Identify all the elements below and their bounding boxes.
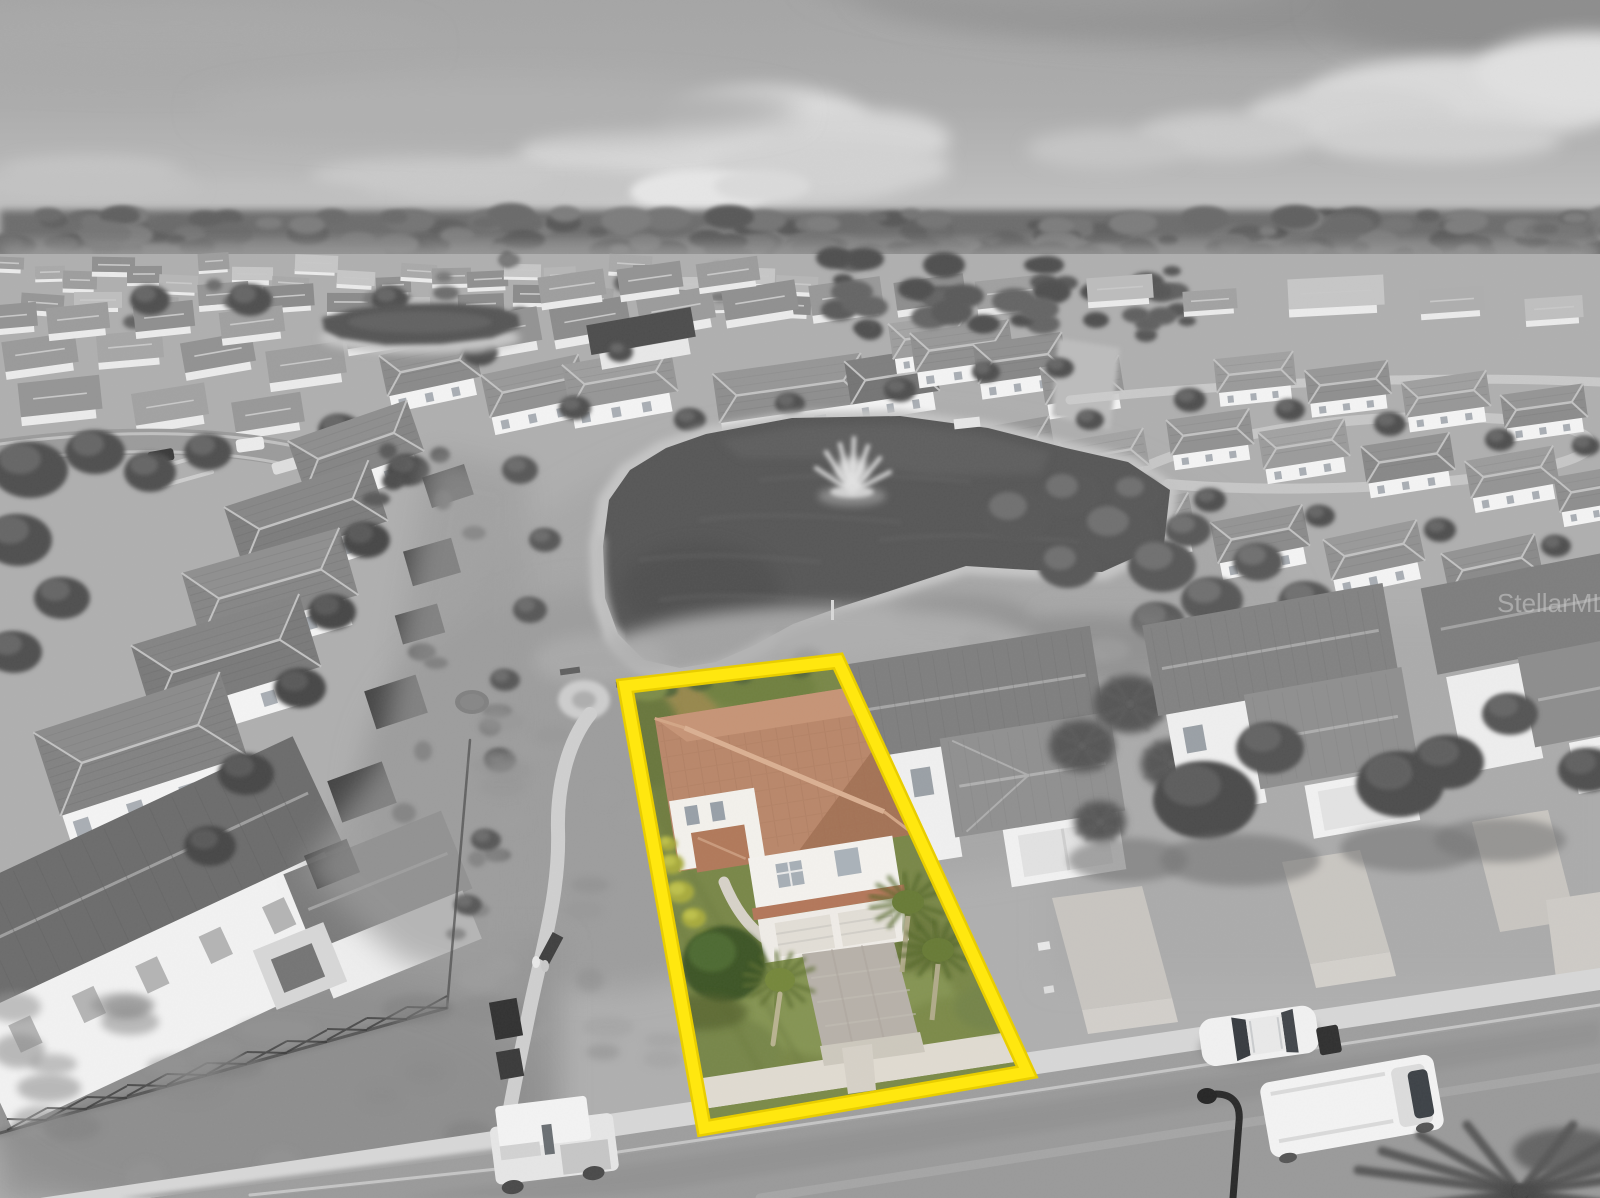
svg-text:StellarMLS: StellarMLS <box>1497 588 1600 618</box>
